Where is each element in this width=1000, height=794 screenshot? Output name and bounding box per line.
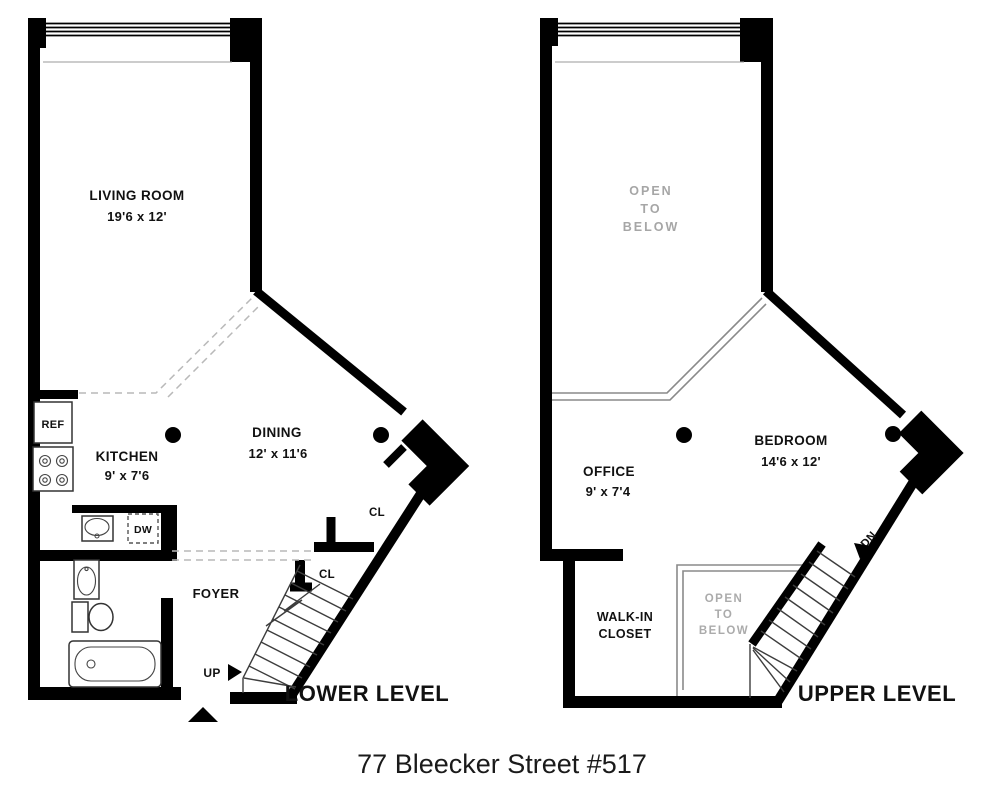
up-arrow-icon — [228, 664, 242, 681]
bathtub — [69, 641, 161, 687]
lower-level-plan: REF DW — [28, 18, 449, 722]
page-title: 77 Bleecker Street #517 — [357, 749, 647, 779]
upper-level-plan: DN OPEN TO BELOW OFFICE 9' x 7'4 BEDROOM… — [540, 18, 956, 708]
upper-window — [555, 24, 744, 63]
open-to-below-line3: BELOW — [623, 220, 680, 234]
walk-in-closet-label-line1: WALK-IN — [597, 610, 653, 624]
refrigerator-label: REF — [42, 419, 65, 431]
office-dims: 9' x 7'4 — [586, 484, 631, 499]
entry-arrow-icon — [188, 707, 218, 722]
floorplan-page: REF DW — [0, 0, 1000, 794]
foyer-label: FOYER — [193, 586, 240, 601]
closet2-label: CL — [319, 569, 335, 581]
upper-stairs: DN — [750, 530, 879, 698]
living-room-dims: 19'6 x 12' — [107, 209, 167, 224]
bedroom-label: BEDROOM — [754, 433, 827, 448]
upper-loft-railing — [552, 298, 766, 400]
dishwasher-label: DW — [134, 524, 152, 536]
lower-walls — [28, 18, 448, 704]
stairs-up-label: UP — [203, 666, 220, 680]
closet1-label: CL — [369, 507, 385, 519]
column-dot — [165, 427, 181, 443]
bedroom-dims: 14'6 x 12' — [761, 454, 821, 469]
column-dot — [885, 426, 901, 442]
open-to-below-line1: OPEN — [629, 184, 672, 198]
open-to-below-stairs-line1: OPEN — [705, 593, 744, 605]
upper-level-title: UPPER LEVEL — [798, 681, 956, 706]
dishwasher: DW — [128, 514, 158, 543]
living-room-label: LIVING ROOM — [89, 188, 184, 203]
walk-in-closet-label-line2: CLOSET — [598, 627, 651, 641]
open-to-below-stairs-line2: TO — [715, 609, 734, 621]
lower-window — [43, 24, 232, 63]
bathroom-sink — [74, 560, 99, 599]
floorplan-image: REF DW — [0, 0, 1000, 794]
open-to-below-line2: TO — [640, 202, 661, 216]
lower-bathroom-fixtures — [69, 560, 161, 687]
dining-dims: 12' x 11'6 — [248, 446, 307, 461]
stove — [33, 447, 73, 491]
dining-label: DINING — [252, 425, 302, 440]
column-dot — [373, 427, 389, 443]
open-to-below-stairs-line3: BELOW — [699, 625, 749, 637]
entry-door-leaf — [386, 447, 404, 465]
kitchen-label: KITCHEN — [96, 449, 159, 464]
kitchen-dims: 9' x 7'6 — [105, 468, 150, 483]
kitchen-sink — [82, 516, 113, 541]
column-dot — [676, 427, 692, 443]
office-label: OFFICE — [583, 464, 635, 479]
lower-level-title: LOWER LEVEL — [285, 681, 449, 706]
toilet — [72, 602, 113, 632]
